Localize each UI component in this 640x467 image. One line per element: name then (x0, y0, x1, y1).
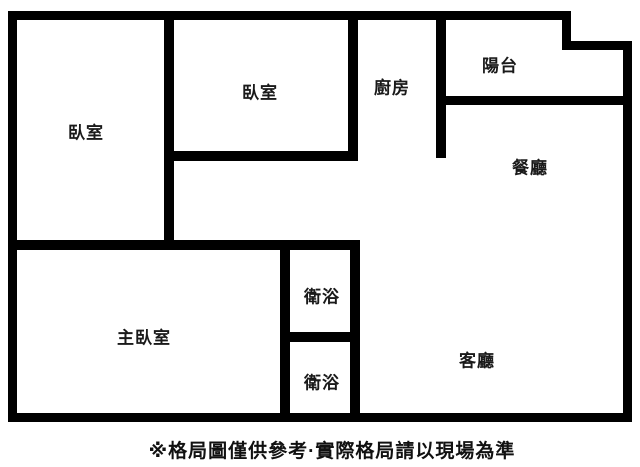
wall-bedroom-top-right (348, 20, 358, 161)
room-label-bedroom-top: 臥室 (242, 79, 278, 104)
room-label-kitchen: 廚房 (374, 74, 410, 99)
wall-bedroom-top-bottom (174, 151, 358, 161)
wall-master-bedroom-right (280, 250, 290, 413)
room-label-balcony: 陽台 (482, 52, 518, 77)
room-label-bathroom-upper: 衛浴 (304, 283, 340, 308)
wall-outer-top (8, 11, 571, 20)
wall-bathroom-divider (290, 332, 350, 342)
disclaimer-text: ※格局圖僅供參考·實際格局請以現場為準 (0, 436, 640, 463)
wall-outer-left (8, 11, 17, 422)
wall-middle-horizontal (8, 240, 360, 250)
wall-outer-bottom (8, 413, 632, 422)
wall-corner-notch-horizontal (562, 41, 632, 50)
room-label-bedroom-left: 臥室 (68, 119, 104, 144)
wall-bedroom-left-right (164, 20, 174, 250)
room-label-living: 客廳 (459, 347, 495, 372)
room-label-dining: 餐廳 (512, 154, 548, 179)
room-label-bathroom-lower: 衛浴 (304, 369, 340, 394)
floor-plan: 臥室 臥室 廚房 陽台 餐廳 主臥室 衛浴 衛浴 客廳 ※格局圖僅供參考·實際格… (0, 0, 640, 467)
wall-balcony-bottom (446, 96, 623, 105)
wall-kitchen-right (436, 20, 446, 158)
wall-bathrooms-right (350, 240, 360, 413)
room-label-master-bedroom: 主臥室 (117, 324, 171, 349)
wall-outer-right (623, 41, 632, 422)
